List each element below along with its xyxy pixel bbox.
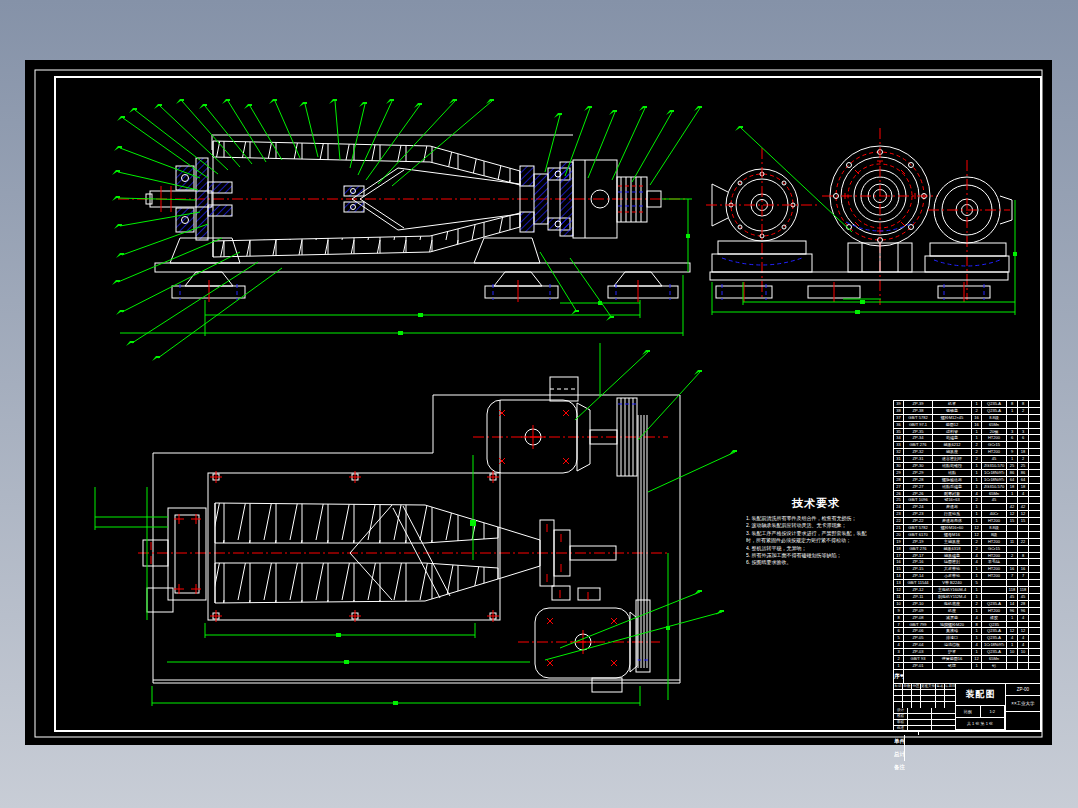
bom-row-cell: GB/T 11544 <box>904 580 933 586</box>
title-block-right: ZP-00 ××工业大学 <box>1006 684 1040 730</box>
change-record-row-cell: 分区 <box>912 684 921 689</box>
change-record-row-cell <box>903 696 912 701</box>
sheet-count: 共 1 张 第 1 张 <box>956 718 1005 730</box>
title-block-signatures: 标记处数分区更改文件号签名年月日 设计校核审核批准 <box>894 684 956 730</box>
bom-row: 3ZP-03护罩1Q235-A1010 <box>894 649 1040 656</box>
bom-row-cell <box>1029 601 1040 607</box>
bom-row: 15ZP-15大皮带轮1HT2001616 <box>894 566 1040 573</box>
bom-row-cell: 15 <box>1007 518 1018 524</box>
bom-row-cell <box>1007 422 1018 428</box>
bom-row-cell: Q235 <box>982 622 1007 628</box>
bom-row-cell: 7 <box>1007 573 1018 579</box>
bom-row-cell: 8 <box>1018 553 1029 559</box>
change-record-row-cell: 年月日 <box>945 684 955 689</box>
bom-row: 2GB/T 93弹簧垫圈161265Mn <box>894 656 1040 663</box>
bom-row-cell: 小皮带轮 <box>933 573 972 579</box>
bom-row-cell: 15 <box>1018 518 1029 524</box>
bom-row-cell: 2 <box>972 546 982 552</box>
bom-row: 19ZP-19主轴承座2HT2001122 <box>894 539 1040 546</box>
bom-row-cell: 毡圈密封 <box>933 559 972 565</box>
bom-row-cell: ZP-09 <box>904 608 933 614</box>
signature-grid: 设计校核审核批准 <box>894 708 955 732</box>
change-record-row-cell: 标记 <box>894 684 903 689</box>
bom-row-cell <box>1018 559 1029 565</box>
bom-row-cell: ZP-17 <box>904 553 933 559</box>
bom-table: 39ZP-39机罩1Q235-A8838ZP-38视镜盖2Q235-A1237G… <box>893 400 1041 684</box>
bom-row-cell: ZP-19 <box>904 539 933 545</box>
bom-row-cell <box>1029 566 1040 572</box>
bom-row-cell: 12 <box>1007 511 1018 517</box>
bom-row-cell: Q235-A <box>982 601 1007 607</box>
bom-row-cell <box>1018 656 1029 662</box>
bom-row: 17ZP-17轴承端盖4HT20028 <box>894 553 1040 560</box>
bom-row-cell: 27 <box>894 484 904 490</box>
bom-row-cell: 2 <box>972 408 982 414</box>
change-record-row-cell: 更改文件号 <box>921 684 936 689</box>
bom-row: 32ZP-32轴承座2HT200918 <box>894 449 1040 456</box>
bom-row-cell: HT200 <box>982 518 1007 524</box>
end-view-left-flange <box>706 148 818 300</box>
bom-row-cell: 36 <box>894 422 904 428</box>
bom-row-cell: ZP-30 <box>904 463 933 469</box>
bom-row-cell: Q235-A <box>982 649 1007 655</box>
bom-row-cell <box>1018 580 1029 586</box>
bom-row-cell: 轴承6318 <box>933 546 972 552</box>
bom-row-cell: 副电机Y112M-4 <box>933 594 972 600</box>
end-view-dimensions <box>712 128 1017 315</box>
bom-row: 13GB/T 11544V带 B22405 <box>894 580 1040 587</box>
signature-row-cell: 设计 <box>894 708 908 713</box>
bom-row-cell: 键16×63 <box>933 497 972 503</box>
bom-row-cell: GB/T 5782 <box>904 415 933 421</box>
signature-row-cell <box>932 708 955 713</box>
bom-row-cell: ZP-11 <box>904 594 933 600</box>
bom-row-cell: 35 <box>894 429 904 435</box>
bom-row-cell <box>1029 608 1040 614</box>
bom-row-cell <box>1007 559 1018 565</box>
bom-row-cell: 18 <box>1007 484 1018 490</box>
signature-row-cell <box>932 720 955 725</box>
bom-row-cell <box>1029 442 1040 448</box>
bom-row-cell: 1 <box>972 484 982 490</box>
bom-row-cell: 11 <box>1007 539 1018 545</box>
bom-row: 6ZP-06集液槽1Q235-A1212 <box>894 628 1040 635</box>
bom-row-cell <box>1029 642 1040 648</box>
bom-row-cell <box>1029 539 1040 545</box>
bom-rows: 39ZP-39机罩1Q235-A8838ZP-38视镜盖2Q235-A1237G… <box>894 401 1040 670</box>
bom-row-cell <box>1029 649 1040 655</box>
change-record-row-cell <box>936 690 945 695</box>
bom-row-cell: 溢流挡板 <box>933 642 972 648</box>
bom-row: 24ZP-24差速器14242 <box>894 504 1040 511</box>
bom-row-cell: HT200 <box>982 608 1007 614</box>
bom-row-cell: ZG310-570 <box>982 484 1007 490</box>
bom-row-cell: HT200 <box>982 573 1007 579</box>
bom-row-cell: 8级 <box>982 532 1007 538</box>
bom-row-cell: 电机底座 <box>933 601 972 607</box>
bom-row-cell: 2 <box>972 456 982 462</box>
bom-row-cell: 1 <box>972 635 982 641</box>
bom-row-cell: 8 <box>972 622 982 628</box>
bom-row-cell: 29 <box>894 470 904 476</box>
bom-row-cell <box>1029 635 1040 641</box>
bom-row-cell: 8.8级 <box>982 415 1007 421</box>
bom-row-cell: HT200 <box>982 566 1007 572</box>
bom-row-cell <box>1029 580 1040 586</box>
bom-row-cell: 10 <box>1007 649 1018 655</box>
bom-row-cell: 10 <box>1018 649 1029 655</box>
bom-row-cell: 护罩 <box>933 649 972 655</box>
bom-row-cell: ZP-14 <box>904 573 933 579</box>
bom-row-cell <box>1007 532 1018 538</box>
bom-row: 21GB/T 5782螺栓M16×60128.8级 <box>894 525 1040 532</box>
bom-row-cell: 86 <box>1007 470 1018 476</box>
bom-row-cell: 20 <box>894 532 904 538</box>
bom-row-cell <box>1029 573 1040 579</box>
bom-row: 36GB/T 97.1垫圈121665Mn <box>894 422 1040 429</box>
bom-header-cell: 单件 <box>894 735 905 748</box>
bom-row-cell: 8 <box>894 615 904 621</box>
bom-row-cell: ZP-12 <box>904 587 933 593</box>
bom-row-cell <box>1018 442 1029 448</box>
bom-row-cell <box>1029 463 1040 469</box>
bom-row-cell: 机座 <box>933 608 972 614</box>
bom-row-cell <box>1029 449 1040 455</box>
bom-row-cell <box>1018 546 1029 552</box>
bom-row: 26ZP-26耐磨衬套465Mn14 <box>894 491 1040 498</box>
bom-row-cell: 4 <box>1007 635 1018 641</box>
bom-row: 38ZP-38视镜盖2Q235-A12 <box>894 408 1040 415</box>
bom-row-cell <box>1029 518 1040 524</box>
bom-row: 4ZP-04溢流挡板41Cr18Ni9Ti14 <box>894 642 1040 649</box>
bom-row-cell: 1 <box>972 511 982 517</box>
bom-row-cell: GB/T 97.1 <box>904 422 933 428</box>
organization-name: ××工业大学 <box>1006 696 1040 712</box>
bom-row-cell: 21 <box>894 525 904 531</box>
bom-row-cell: 1Cr18Ni9Ti <box>982 470 1007 476</box>
bom-row-cell: GB/T 6170 <box>904 532 933 538</box>
bom-row-cell: ZP-32 <box>904 449 933 455</box>
bom-row-cell: HT200 <box>982 449 1007 455</box>
bom-row-cell: 6 <box>1007 435 1018 441</box>
bom-row-cell: 8 <box>1018 401 1029 407</box>
bom-row-cell: 7 <box>1018 573 1029 579</box>
technical-requirements-title: 技术要求 <box>746 496 886 511</box>
bom-row-cell: ZP-26 <box>904 491 933 497</box>
bom-row-cell: 差速器 <box>933 504 972 510</box>
bom-row-cell: 30 <box>894 463 904 469</box>
bom-row-cell: 1 <box>972 594 982 600</box>
bom-row-cell <box>1007 442 1018 448</box>
bom-header-cell: 备注 <box>894 761 905 774</box>
bom-row-cell: 11 <box>894 594 904 600</box>
change-record-row-cell <box>945 696 955 701</box>
title-block: 标记处数分区更改文件号签名年月日 设计校核审核批准 装配图 比例 1:2 共 1… <box>893 683 1041 731</box>
bom-row-cell: 4 <box>972 559 982 565</box>
bom-row-cell: GB/T 5782 <box>904 525 933 531</box>
bom-row-cell: 40Cr <box>982 511 1007 517</box>
bom-row-cell: 96 <box>1007 608 1018 614</box>
bom-row-cell <box>1029 401 1040 407</box>
bom-row: 22ZP-22差速器壳体1HT2001515 <box>894 518 1040 525</box>
bom-row-cell <box>982 594 1007 600</box>
bom-row-cell: 10 <box>894 601 904 607</box>
bom-row-cell: 96 <box>1018 608 1029 614</box>
signature-row: 批准 <box>894 726 955 732</box>
bom-row-cell: 主轴承座 <box>933 539 972 545</box>
bom-row-cell: 18 <box>1018 449 1029 455</box>
bom-row-cell: 22 <box>894 518 904 524</box>
bom-row-cell <box>1029 525 1040 531</box>
bom-row-cell: 45 <box>982 456 1007 462</box>
bom-row-cell: 24 <box>894 504 904 510</box>
bom-row-cell: GCr15 <box>982 442 1007 448</box>
bom-row-cell: 2 <box>1018 408 1029 414</box>
technical-requirements-list: 1. 装配前清洗所有零件及组合件，检查有无损伤；2. 滚动轴承装配后应转动灵活、… <box>746 515 886 567</box>
technical-requirement-line: 4. 整机运转平稳，无异响； <box>746 545 886 552</box>
technical-requirement-line: 6. 按图纸要求验收。 <box>746 559 886 566</box>
bom-row: 7GB/T 799地脚螺栓M208Q235 <box>894 622 1040 629</box>
signature-row-cell: 校核 <box>894 714 908 719</box>
bom-row-cell: 1 <box>1007 456 1018 462</box>
change-record-row-cell <box>903 690 912 695</box>
plan-secondary-motor <box>535 608 637 692</box>
change-record-row-cell <box>894 690 903 695</box>
bom-row-cell: 1Cr18Ni9Ti <box>982 477 1007 483</box>
change-record-row-cell <box>912 696 921 701</box>
bom-row-cell: 14 <box>894 573 904 579</box>
technical-requirement-line: 5. 所有外露加工面不得有磕碰划伤等缺陷； <box>746 552 886 559</box>
bom-row-cell: 1 <box>972 573 982 579</box>
bom-row-cell <box>1029 656 1040 662</box>
bom-row-cell: 1 <box>972 663 982 669</box>
bom-row-cell: 64 <box>1007 477 1018 483</box>
bom-row-cell: ZP-01 <box>904 663 933 669</box>
bom-row-cell: 主电机Y160M-4 <box>933 587 972 593</box>
technical-requirements: 技术要求 1. 装配前清洗所有零件及组合件，检查有无损伤；2. 滚动轴承装配后应… <box>746 496 886 567</box>
bom-row-cell: 18 <box>1018 484 1029 490</box>
signature-row-cell <box>932 714 955 719</box>
bom-row-cell: GB/T 799 <box>904 622 933 628</box>
bom-row-cell: ZP-31 <box>904 456 933 462</box>
change-record-row-cell: 签名 <box>936 684 945 689</box>
bom-header-cell: 序号 <box>894 670 904 683</box>
bom-row-cell: 45 <box>1007 594 1018 600</box>
bom-row-cell: 25 <box>1007 463 1018 469</box>
bom-row-cell <box>1007 580 1018 586</box>
page: { "colors":{ "background_top":"#8592a8",… <box>0 0 1078 808</box>
bom-row-cell: 20钢 <box>982 429 1007 435</box>
change-record-row-cell <box>945 690 955 695</box>
bom-row-cell <box>1029 484 1040 490</box>
bom-row-cell: ZP-16 <box>904 559 933 565</box>
bom-row-cell <box>1007 525 1018 531</box>
bom-row-cell <box>1029 553 1040 559</box>
bom-row-cell: 26 <box>894 491 904 497</box>
bom-row-cell: GB/T 276 <box>904 546 933 552</box>
bom-row-cell: 9 <box>1007 449 1018 455</box>
bom-row: 12ZP-12主电机Y160M-41118118 <box>894 587 1040 594</box>
bom-row-cell: 1 <box>972 566 982 572</box>
bom-row: 18GB/T 276轴承63182GCr15 <box>894 546 1040 553</box>
bom-row-cell: Q235-A <box>982 401 1007 407</box>
bom-row: 39ZP-39机罩1Q235-A88 <box>894 401 1040 408</box>
bom-row-cell: 螺旋输送器 <box>933 477 972 483</box>
bom-row-cell: 地脚螺栓M20 <box>933 622 972 628</box>
bom-row-cell: 迷宫密封环 <box>933 456 972 462</box>
side-section-view <box>118 101 700 358</box>
bom-row-cell: 羊毛毡 <box>982 559 1007 565</box>
bom-row-cell: Q235-A <box>982 628 1007 634</box>
technical-requirement-line: 3. 装配工序严格按设计要求进行，严禁野蛮装配，装配 <box>746 530 886 537</box>
bom-row-cell: 28 <box>1018 601 1029 607</box>
bom-row-cell <box>1029 615 1040 621</box>
bom-row-cell: 2 <box>1007 553 1018 559</box>
bom-row: 27ZP-27转鼓后端盖1ZG310-5701818 <box>894 484 1040 491</box>
title-block-blank-cell <box>1006 712 1040 730</box>
bom-row-cell: 4 <box>972 553 982 559</box>
bom-row-cell: 5 <box>894 635 904 641</box>
bom-row-cell: 1 <box>972 504 982 510</box>
bom-row-cell: V带 B2240 <box>933 580 972 586</box>
bom-row-cell: 45 <box>1018 594 1029 600</box>
bom-row: 23ZP-23行星轮系140Cr1212 <box>894 511 1040 518</box>
change-record-row-cell <box>921 690 936 695</box>
plan-main-motor <box>487 377 617 473</box>
bom-row-cell: GB/T 93 <box>904 656 933 662</box>
bom-row-cell <box>1029 415 1040 421</box>
bom-row-cell <box>1029 456 1040 462</box>
bom-header-row: 序号代号名称数量材料单件总计备注 <box>894 670 1040 683</box>
signature-row-cell <box>908 720 932 725</box>
bom-row-cell <box>1029 663 1040 669</box>
bom-row-cell: 1 <box>972 435 982 441</box>
bom-row-cell: 6 <box>894 628 904 634</box>
end-view <box>706 128 1017 315</box>
bom-row-cell: 118 <box>1018 587 1029 593</box>
bom-row-cell: 4 <box>1018 491 1029 497</box>
plan-bowl <box>215 503 540 603</box>
bom-row-cell: 38 <box>894 408 904 414</box>
bom-row-cell: GB/T 276 <box>904 442 933 448</box>
bom-row-cell: 34 <box>894 435 904 441</box>
bom-row-cell <box>1007 656 1018 662</box>
bom-row-cell: 橡胶 <box>982 615 1007 621</box>
bom-row-cell: 视镜盖 <box>933 408 972 414</box>
bom-row-cell: 排渣口 <box>933 635 972 641</box>
bom-row-cell: 6 <box>1018 435 1029 441</box>
bom-row-cell <box>1018 525 1029 531</box>
scale-grid: 比例 1:2 共 1 张 第 1 张 <box>956 706 1005 730</box>
bom-row-cell: ZP-35 <box>904 429 933 435</box>
bom-row-cell: ZP-34 <box>904 435 933 441</box>
bom-row-cell: ZP-06 <box>904 628 933 634</box>
bom-row-cell: 32 <box>894 449 904 455</box>
bom-row-cell: 垫圈12 <box>933 422 972 428</box>
bom-row-cell <box>1007 622 1018 628</box>
bom-row-cell: ZP-38 <box>904 408 933 414</box>
bom-row-cell: 4 <box>972 615 982 621</box>
bom-row: 5ZP-05排渣口1Q235-A44 <box>894 635 1040 642</box>
bom-row-cell: 螺栓M16×60 <box>933 525 972 531</box>
bom-row-cell: 转鼓后端盖 <box>933 484 972 490</box>
signature-row-cell <box>908 726 932 732</box>
bom-row: 1ZP-01铭牌1铝 <box>894 663 1040 670</box>
bom-row-cell: 行星轮系 <box>933 511 972 517</box>
bom-row-cell: ZP-05 <box>904 635 933 641</box>
bom-row-cell: GB/T 1096 <box>904 497 933 503</box>
bom-row-cell: 118 <box>1007 587 1018 593</box>
bom-row-cell: 轴承座 <box>933 449 972 455</box>
bom-header: 序号代号名称数量材料单件总计备注 <box>894 670 1040 683</box>
bom-row-cell <box>1029 435 1040 441</box>
bom-row-cell: ZP-04 <box>904 642 933 648</box>
bom-row: 10ZP-10电机底座2Q235-A1428 <box>894 601 1040 608</box>
bom-row-cell: 转鼓 <box>933 470 972 476</box>
bom-row: 37GB/T 5782螺栓M12×45168.8级 <box>894 415 1040 422</box>
bom-row-cell <box>1029 532 1040 538</box>
bom-row-cell: 大皮带轮 <box>933 566 972 572</box>
bom-row-cell: 16 <box>972 422 982 428</box>
bom-row-cell: 16 <box>894 559 904 565</box>
bom-row-cell: 1 <box>972 429 982 435</box>
bom-row: 31ZP-31迷宫密封环24512 <box>894 456 1040 463</box>
bom-row-cell <box>1007 415 1018 421</box>
bom-row-cell: 2 <box>894 656 904 662</box>
bom-row-cell: 12 <box>972 532 982 538</box>
bom-row-cell: ZP-03 <box>904 649 933 655</box>
bom-row-cell: 12 <box>1018 628 1029 634</box>
bom-row-cell: 86 <box>1018 470 1029 476</box>
bom-row-cell: 3 <box>1018 429 1029 435</box>
bom-row-cell: 差速器壳体 <box>933 518 972 524</box>
bom-row: 14ZP-14小皮带轮1HT20077 <box>894 573 1040 580</box>
bom-row-cell <box>1029 470 1040 476</box>
bom-row-cell <box>1007 497 1018 503</box>
bom-row: 33GB/T 276轴承62122GCr15 <box>894 442 1040 449</box>
bom-row-cell: 1 <box>1007 642 1018 648</box>
bom-row-cell: 4 <box>894 642 904 648</box>
bom-row-cell: ZP-23 <box>904 511 933 517</box>
bom-row-cell: 减震垫 <box>933 615 972 621</box>
bom-row-cell: 弹簧垫圈16 <box>933 656 972 662</box>
bom-row-cell <box>1029 477 1040 483</box>
bom-row-cell: 65Mn <box>982 491 1007 497</box>
bom-row-cell: 前端盖 <box>933 435 972 441</box>
bom-row-cell <box>1018 415 1029 421</box>
bom-row-cell <box>1029 559 1040 565</box>
drawing-title: 装配图 <box>956 684 1005 706</box>
bom-row-cell: 31 <box>894 456 904 462</box>
bom-row-cell <box>1007 546 1018 552</box>
bom-row-cell: 4 <box>972 491 982 497</box>
bom-row-cell: 耐磨衬套 <box>933 491 972 497</box>
bom-row: 30ZP-30转鼓前锥段1ZG310-5702525 <box>894 463 1040 470</box>
bom-row-cell: 1 <box>972 470 982 476</box>
bom-row-cell <box>1029 422 1040 428</box>
plan-view <box>95 343 735 706</box>
bom-row-cell: 22 <box>1018 539 1029 545</box>
bom-row-cell: 25 <box>894 497 904 503</box>
bom-row-cell: 19 <box>894 539 904 545</box>
bom-row-cell: 45 <box>982 497 1007 503</box>
bom-row-cell: 1Cr18Ni9Ti <box>982 642 1007 648</box>
bom-row-cell: 2 <box>972 442 982 448</box>
end-view-right-flange <box>925 160 1012 300</box>
bom-header-cell: 总计 <box>894 748 905 761</box>
bom-row-cell: HT200 <box>982 539 1007 545</box>
bom-row-cell: ZG310-570 <box>982 463 1007 469</box>
